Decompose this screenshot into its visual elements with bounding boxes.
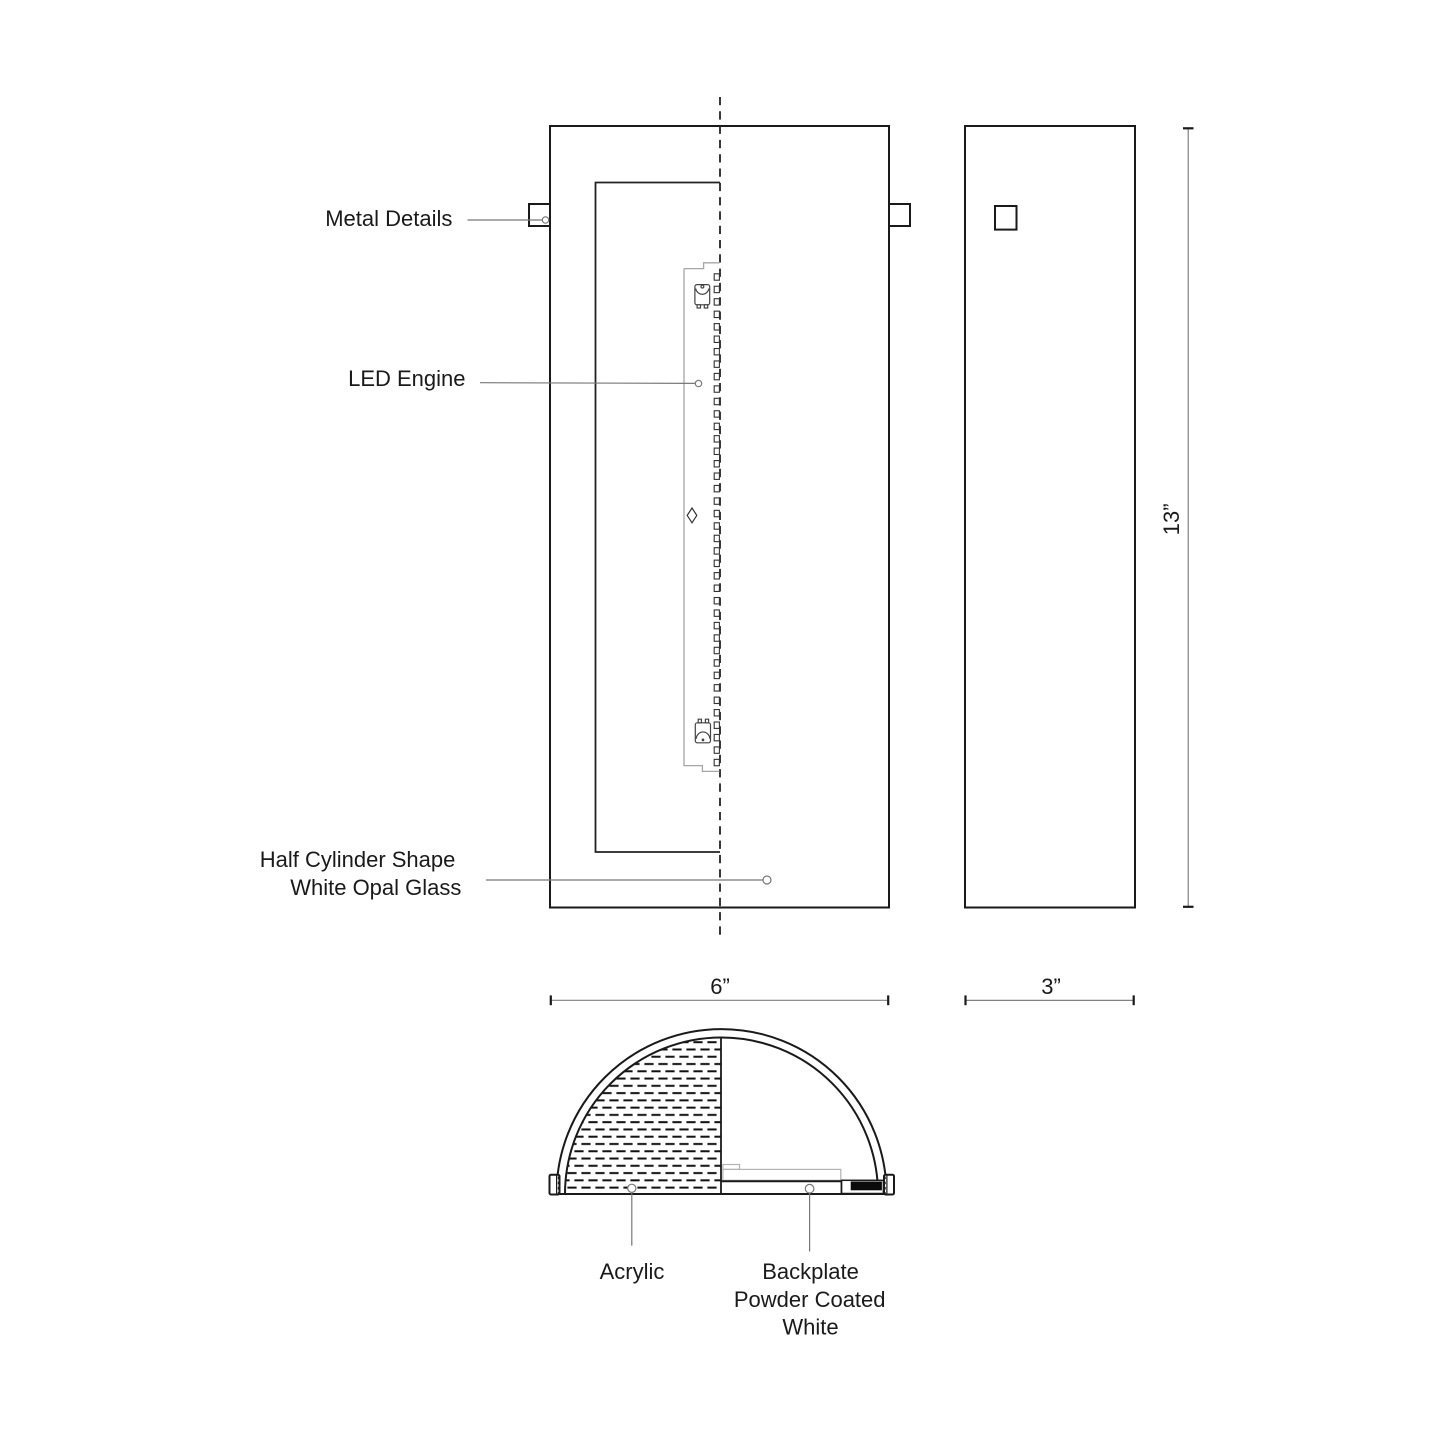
svg-text:Metal Details: Metal Details — [325, 206, 452, 231]
svg-text:Acrylic: Acrylic — [600, 1259, 665, 1284]
svg-text:Powder Coated: Powder Coated — [734, 1287, 886, 1312]
svg-text:LED Engine: LED Engine — [348, 366, 465, 391]
svg-text:White: White — [782, 1315, 838, 1340]
svg-text:Half Cylinder Shape: Half Cylinder Shape — [260, 847, 456, 872]
svg-text:13”: 13” — [1159, 503, 1184, 535]
svg-text:3”: 3” — [1041, 974, 1061, 999]
svg-text:Backplate: Backplate — [762, 1259, 859, 1284]
svg-text:6”: 6” — [710, 974, 730, 999]
svg-text:White Opal Glass: White Opal Glass — [290, 875, 461, 900]
